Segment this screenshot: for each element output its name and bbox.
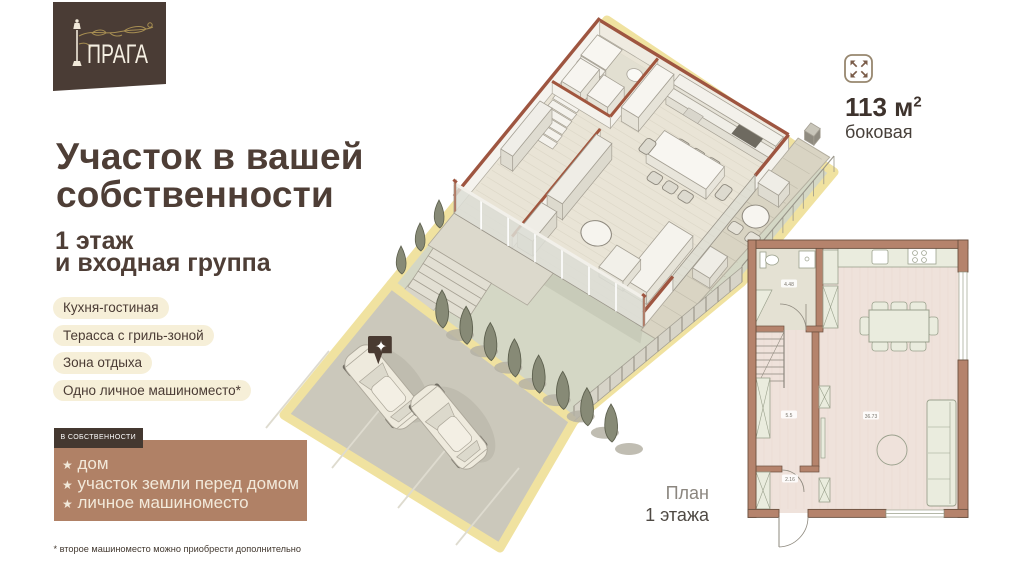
svg-text:4.48: 4.48: [784, 282, 794, 288]
svg-text:5.5: 5.5: [786, 413, 793, 419]
svg-text:2.16: 2.16: [785, 477, 795, 483]
svg-text:ПРАГА: ПРАГА: [87, 39, 148, 69]
svg-text:36.73: 36.73: [865, 414, 878, 420]
svg-text:✦: ✦: [375, 339, 388, 356]
